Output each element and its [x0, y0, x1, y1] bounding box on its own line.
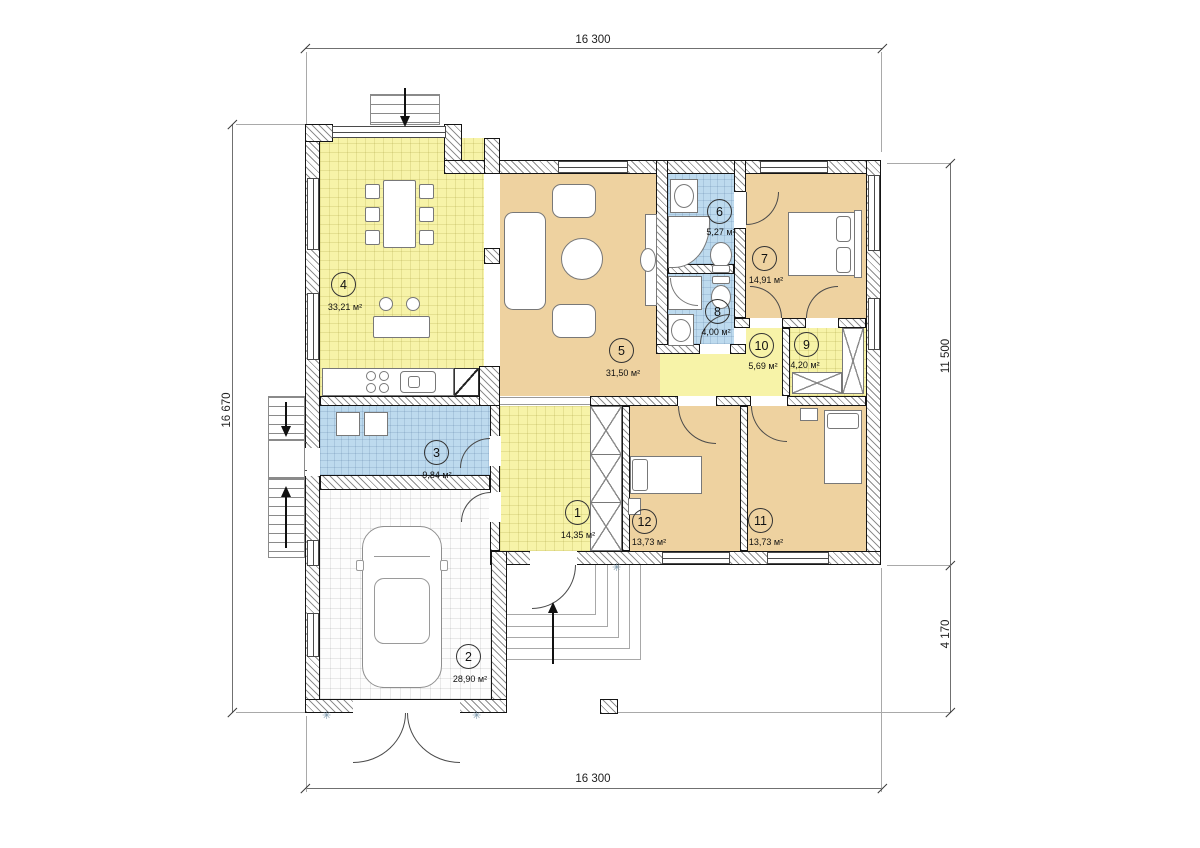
window-garage-left-1: [307, 540, 319, 566]
pillow: [836, 216, 851, 242]
wall-corridor-room9: [782, 328, 790, 396]
door-bath6-leaf: [746, 192, 747, 225]
dining-table: [383, 180, 416, 248]
wall-garage-right: [491, 551, 507, 713]
dim-ext: [618, 712, 950, 713]
window-garage-left-2: [307, 613, 319, 657]
porch-step: [507, 565, 641, 660]
window-room12-bottom: [662, 552, 730, 564]
room-10-area: 5,69 м²: [748, 361, 777, 371]
room-4-area: 33,21 м²: [328, 302, 362, 312]
chair: [419, 230, 434, 245]
room-1-number: 1: [565, 500, 590, 525]
room-9-number: 9: [794, 332, 819, 357]
fridge: [454, 368, 479, 396]
car-cabin: [374, 578, 430, 644]
room-5-area: 31,50 м²: [606, 368, 640, 378]
garage-gate-left-leaf: [353, 713, 406, 763]
room-7-number: 7: [752, 246, 777, 271]
window-room11-bottom: [767, 552, 829, 564]
bar-stool: [379, 297, 393, 311]
dim-ext: [881, 52, 882, 152]
wall-room12-room11: [740, 406, 748, 551]
dim-label-right-lower: 4 170: [940, 599, 952, 669]
dim-ext: [236, 124, 305, 125]
opening-room3-exterior: [305, 448, 320, 476]
wall-room7-room9: [838, 318, 866, 328]
sofa: [504, 212, 546, 310]
bar-stool: [406, 297, 420, 311]
car-hood-line: [374, 556, 430, 557]
dim-ext: [306, 716, 307, 792]
wall-hall-garage: [490, 396, 500, 551]
stove-burner: [366, 371, 376, 381]
dim-line-bottom: [305, 788, 882, 789]
garage-gate-right-leaf: [407, 713, 460, 763]
room-3-area: 9,84 м²: [422, 470, 451, 480]
armchair-bottom: [552, 304, 596, 338]
tv-icon: [640, 248, 656, 272]
wall-bath8-corridor-seg2: [730, 344, 746, 354]
opening-garage-gate: [353, 700, 460, 713]
hall-wardrobe-cell: [590, 454, 622, 503]
room-9-area: 4,20 м²: [790, 360, 819, 370]
hall-wardrobe-cell: [590, 406, 622, 455]
wall-corner-top-left: [305, 124, 333, 142]
drain-marker-icon: ✳: [472, 709, 481, 722]
chair: [365, 207, 380, 222]
window-room7-top: [760, 161, 828, 173]
wall-kitchen-living-pier: [484, 248, 500, 264]
room-5-number: 5: [609, 338, 634, 363]
room-11-area: 13,73 м²: [749, 537, 783, 547]
porch-column: [600, 699, 618, 714]
window-room4-left-2: [307, 293, 319, 360]
kitchen-island: [373, 316, 430, 338]
car-mirror: [356, 560, 364, 571]
opening-room3-hall: [489, 436, 501, 466]
stair-arrow-left-down-head: [281, 426, 291, 437]
pillow: [632, 459, 648, 491]
wall-kitchen-living-bottom: [479, 366, 500, 406]
dim-ext: [887, 565, 950, 566]
window-room5-top: [558, 161, 628, 173]
wall-a-seg2: [590, 396, 678, 406]
porch-arrow-head: [548, 602, 558, 613]
window-room4-top: [332, 126, 446, 138]
drain-marker-icon: ✳: [322, 709, 331, 722]
dim-ext: [881, 568, 882, 792]
room-12-number: 12: [632, 509, 657, 534]
room-1-area: 14,35 м²: [561, 530, 595, 540]
wall-a-seg3: [716, 396, 751, 406]
opening-entrance: [530, 551, 577, 565]
wardrobe-vertical: [842, 328, 864, 394]
toilet8-tank: [712, 276, 730, 284]
room-4-number: 4: [331, 272, 356, 297]
exterior-stair-landing: [268, 440, 305, 478]
stove-burner: [366, 383, 376, 393]
wall-hall-room12: [622, 406, 630, 551]
room-4-kitchen-dining-floor: [320, 138, 484, 396]
stair-arrow-top-shaft: [404, 88, 406, 118]
wall-baths-room7-seg2: [734, 228, 746, 318]
pillow: [836, 247, 851, 273]
coffee-table: [561, 238, 603, 280]
window-room7-right: [868, 175, 880, 251]
dim-label-left: 16 670: [221, 375, 233, 445]
dim-ext: [306, 52, 307, 124]
dim-label-right-upper: 11 500: [940, 321, 952, 391]
window-room9-right: [868, 298, 880, 350]
dim-ext: [236, 712, 305, 713]
wall-a-seg4: [787, 396, 866, 406]
stove-burner: [379, 383, 389, 393]
chair: [419, 184, 434, 199]
window-room4-left-1: [307, 178, 319, 250]
kitchen-sink-bowl: [408, 376, 420, 388]
room-2-number: 2: [456, 644, 481, 669]
room-6-number: 6: [707, 199, 732, 224]
bathroom8-sink-bowl: [671, 319, 691, 342]
armchair-top: [552, 184, 596, 218]
stair-arrow-left-up-head: [281, 486, 291, 497]
dim-label-top: 16 300: [575, 34, 610, 46]
wall-room3-garage: [320, 475, 490, 490]
chair: [419, 207, 434, 222]
hall-wardrobe-cell: [590, 502, 622, 551]
wall-a-seg1: [320, 396, 500, 406]
chair: [365, 184, 380, 199]
dim-label-bottom: 16 300: [575, 773, 610, 785]
stove-burner: [379, 371, 389, 381]
dim-line-top: [305, 48, 882, 49]
room-3-number: 3: [424, 440, 449, 465]
wall-room7-corridor-seg1: [734, 318, 750, 328]
room-8-number: 8: [705, 299, 730, 324]
room-12-area: 13,73 м²: [632, 537, 666, 547]
dim-ext: [887, 163, 950, 164]
room-2-area: 28,90 м²: [453, 674, 487, 684]
room-11-number: 11: [748, 508, 773, 533]
drain-marker-icon: ✳: [612, 561, 621, 574]
porch-arrow-shaft: [552, 612, 554, 664]
double-bed-headboard: [854, 210, 862, 278]
floor-plan: ✳ ✳ ✳ 16 300 16 300 16 670 11 500 4 170 …: [0, 0, 1200, 848]
stair-arrow-left-up-shaft: [285, 496, 287, 548]
threshold-living-hall: [500, 397, 590, 405]
room-6-area: 5,27 м²: [706, 227, 735, 237]
wall-baths-room7-seg1: [734, 160, 746, 192]
toilet6-tank: [712, 265, 730, 273]
bathroom6-sink-bowl: [674, 184, 694, 208]
wall-living-baths: [656, 160, 668, 354]
washing-machine: [364, 412, 388, 436]
wall-kitchen-living-top: [484, 138, 500, 174]
wall-room7-corridor-seg2: [782, 318, 806, 328]
room-10-number: 10: [749, 333, 774, 358]
wardrobe-horizontal: [792, 372, 842, 394]
room-8-area: 4,00 м²: [701, 327, 730, 337]
washing-machine: [336, 412, 360, 436]
room-7-area: 14,91 м²: [749, 275, 783, 285]
chair: [365, 230, 380, 245]
nightstand-11: [800, 408, 818, 421]
car-mirror: [440, 560, 448, 571]
stair-arrow-top-head: [400, 116, 410, 127]
pillow: [827, 413, 859, 429]
